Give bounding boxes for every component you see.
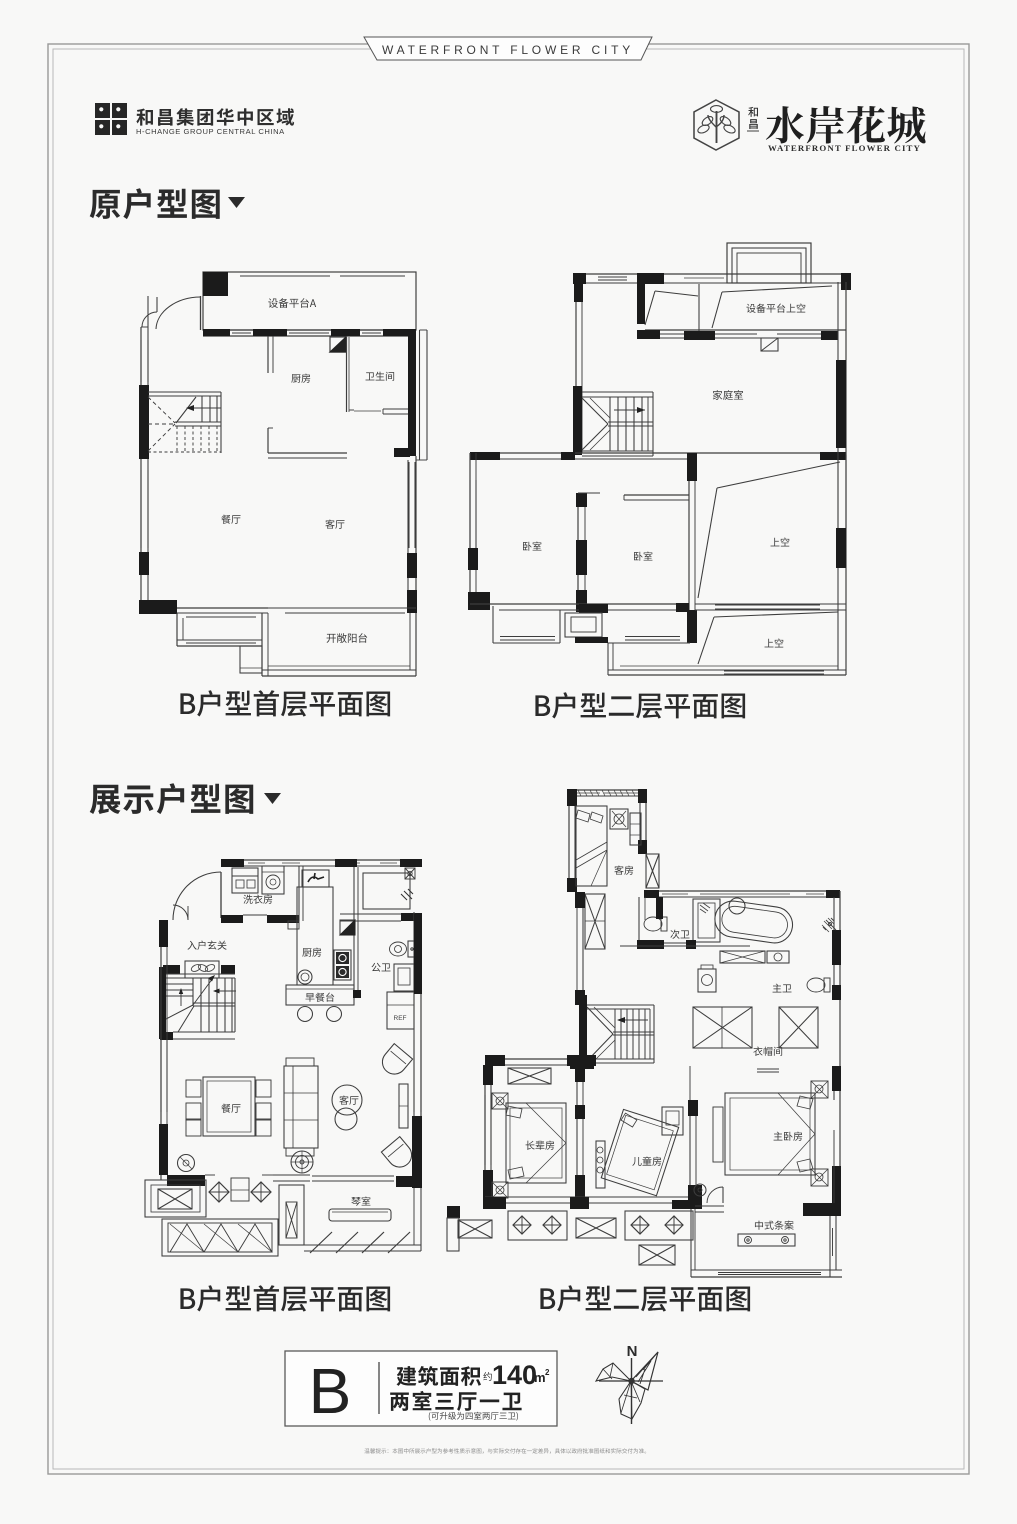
svg-text:REF: REF: [394, 1015, 407, 1022]
svg-text:N: N: [627, 1343, 638, 1360]
svg-text:H-CHANGE GROUP CENTRAL CHINA: H-CHANGE GROUP CENTRAL CHINA: [136, 127, 285, 136]
svg-text:m: m: [534, 1370, 546, 1385]
svg-text:WATERFRONT FLOWER CITY: WATERFRONT FLOWER CITY: [768, 143, 921, 153]
svg-text:WATERFRONT FLOWER CITY: WATERFRONT FLOWER CITY: [382, 43, 634, 57]
svg-text:2: 2: [545, 1368, 550, 1377]
svg-text:140: 140: [492, 1360, 537, 1390]
svg-text:B: B: [309, 1355, 352, 1427]
